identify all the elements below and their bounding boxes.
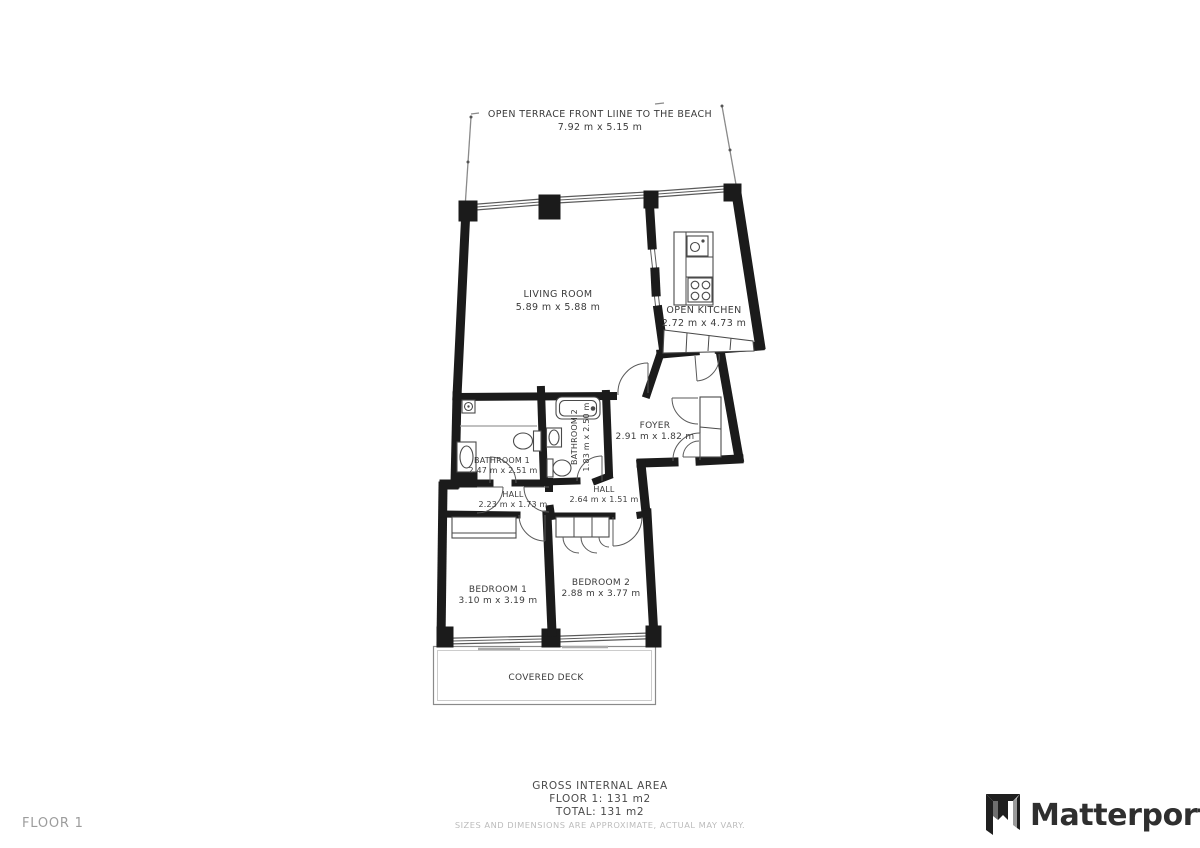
bathroom1-label: BATHROOM 1 [474,456,530,465]
bedroom1-label: BEDROOM 1 [469,585,527,595]
bathroom1-toilet-icon [514,431,542,451]
door-foyer-closet-upper [672,398,698,424]
bedroom2-dims: 2.88 m x 3.77 m [562,589,641,599]
interior-walls [443,197,664,632]
shower-icon [460,400,537,426]
bedroom2-label: BEDROOM 2 [572,578,630,588]
foyer-closet [700,397,721,457]
terrace-dims: 7.92 m x 5.15 m [558,122,643,133]
bedroom2-wardrobe [556,517,609,553]
hall1-label: HALL [502,490,524,499]
window-bedroom2 [560,636,646,647]
window-living-left [477,202,540,207]
terrace-label: OPEN TERRACE FRONT LIINE TO THE BEACH [488,109,712,120]
floor-plan-page: OPEN TERRACE FRONT LIINE TO THE BEACH 7.… [0,0,1200,848]
bedroom1-dims: 3.10 m x 3.19 m [459,596,538,606]
disclaimer-text: SIZES AND DIMENSIONS ARE APPROXIMATE, AC… [455,820,745,830]
kitchen-label: OPEN KITCHEN [666,305,741,316]
stove-icon [688,278,712,302]
kitchen-counter [663,330,754,353]
bathroom2-sink-icon [547,428,562,447]
matterport-logo: Matterport [986,794,1200,835]
floor-plan: OPEN TERRACE FRONT LIINE TO THE BEACH 7.… [0,0,1200,848]
door-bedroom2 [613,517,642,546]
matterport-wordmark: Matterport [1030,798,1200,833]
hall2-dims: 2.64 m x 1.51 m [569,495,638,504]
living-room-label: LIVING ROOM [523,289,592,300]
hall2-label: HALL [593,485,615,494]
door-foyer-closet-lower [683,441,699,457]
kitchen-sink-icon [687,236,708,256]
door-living-foyer [618,363,648,395]
bathroom2-dims: 1.83 m x 2.50 m [582,402,591,471]
window-living-right [559,195,645,200]
window-kitchen [658,189,725,194]
door-bedroom1 [519,515,545,541]
floor-selector-label: FLOOR 1 [22,816,84,831]
bathroom1-dims: 2.47 m x 2.51 m [468,466,537,475]
foyer-label: FOYER [640,421,671,431]
bedroom1-wardrobe [452,517,516,538]
gross-area-title: GROSS INTERNAL AREA [532,780,668,792]
foyer-dims: 2.91 m x 1.82 m [616,432,695,442]
door-kitchen-foyer [695,354,719,381]
floor-area-value: FLOOR 1: 131 m2 [549,793,651,805]
kitchen-dims: 2.72 m x 4.73 m [662,318,747,329]
kitchen-island [674,232,713,305]
bathroom2-toilet-icon [547,459,571,477]
living-room-dims: 5.89 m x 5.88 m [516,302,601,313]
hall1-dims: 2.23 m x 1.73 m [478,500,547,509]
bathroom2-label: BATHROOM 2 [570,409,579,465]
total-area-value: TOTAL: 131 m2 [555,806,644,818]
matterport-logo-icon [986,794,1020,835]
deck-label: COVERED DECK [508,673,584,683]
